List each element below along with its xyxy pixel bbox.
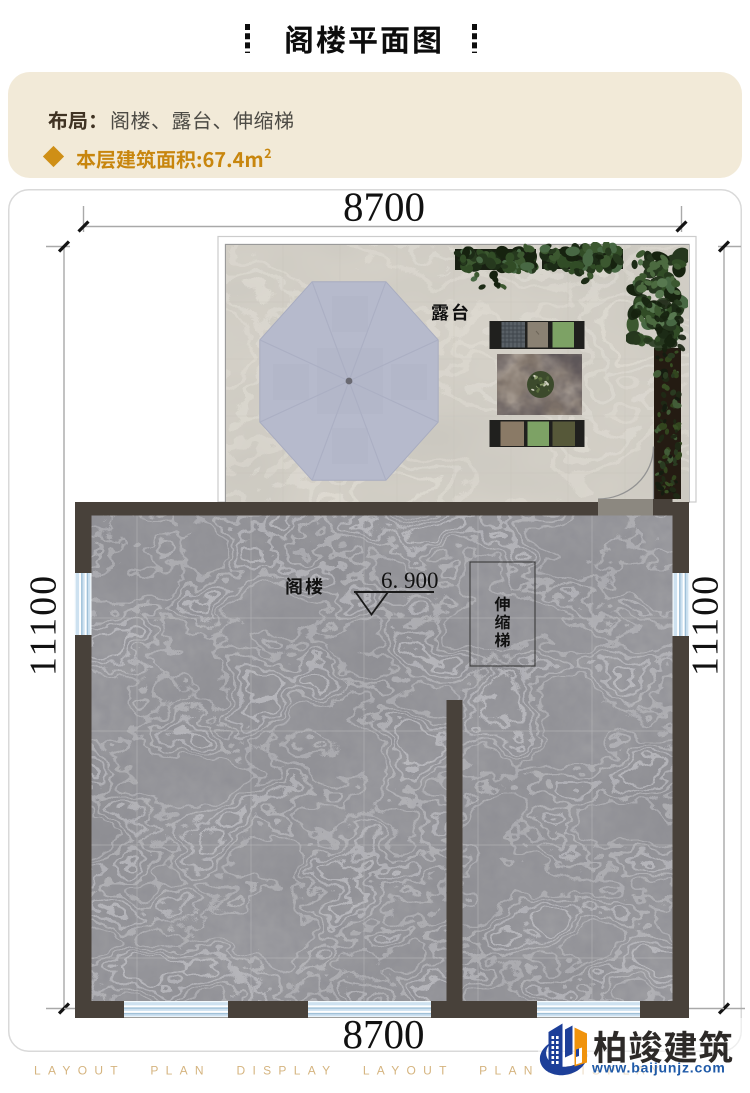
svg-text:6. 900: 6. 900 xyxy=(381,568,439,593)
svg-text:11100: 11100 xyxy=(23,574,65,676)
svg-text:11100: 11100 xyxy=(685,574,727,676)
svg-text:8700: 8700 xyxy=(343,184,425,230)
svg-text:www.baijunjz.com: www.baijunjz.com xyxy=(591,1060,726,1076)
